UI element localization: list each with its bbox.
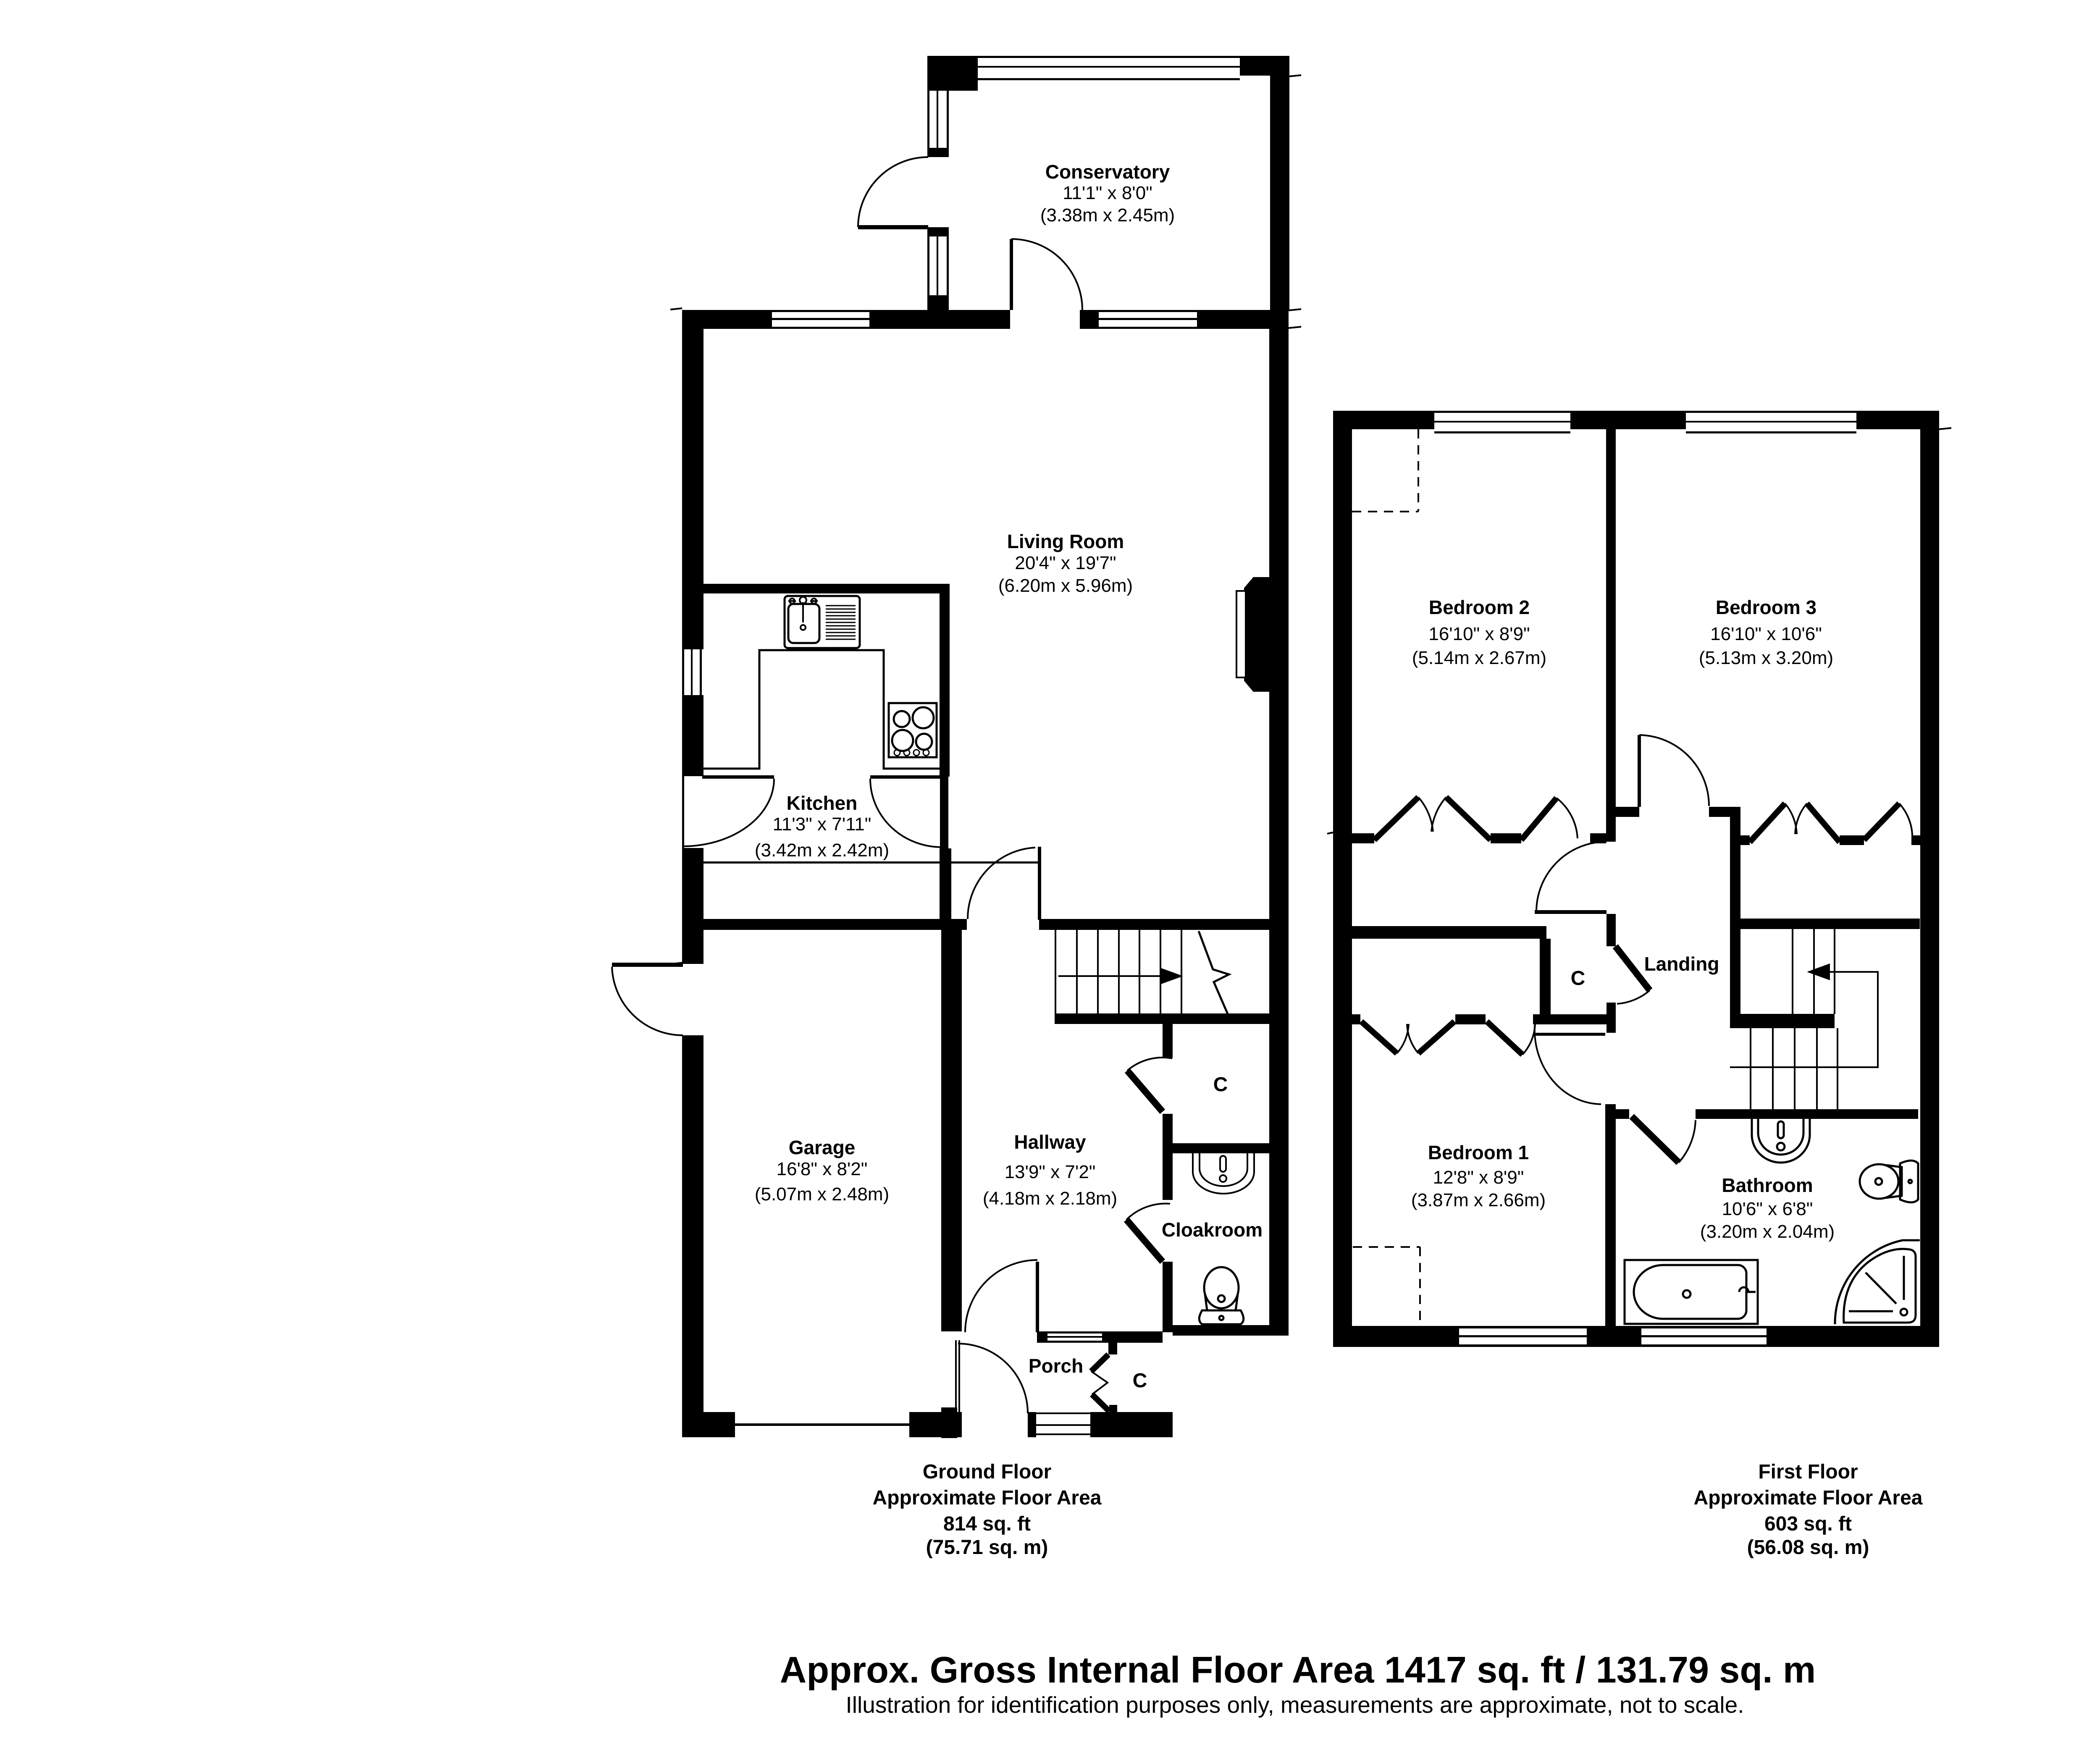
svg-text:Approximate Floor Area: Approximate Floor Area: [873, 1487, 1102, 1509]
svg-text:Living Room: Living Room: [1007, 530, 1124, 552]
svg-text:(3.42m x 2.42m): (3.42m x 2.42m): [755, 840, 889, 861]
svg-text:Conservatory: Conservatory: [1045, 161, 1170, 183]
svg-text:Bedroom 1: Bedroom 1: [1428, 1142, 1529, 1163]
svg-text:Ground Floor: Ground Floor: [923, 1461, 1052, 1483]
svg-text:12'8" x 8'9": 12'8" x 8'9": [1433, 1167, 1524, 1188]
svg-text:(5.07m x 2.48m): (5.07m x 2.48m): [755, 1184, 889, 1205]
svg-text:Porch: Porch: [1029, 1355, 1083, 1377]
svg-text:(5.14m x 2.67m): (5.14m x 2.67m): [1412, 648, 1546, 668]
svg-text:11'3" x 7'11": 11'3" x 7'11": [773, 814, 871, 835]
svg-text:Bedroom 3: Bedroom 3: [1716, 596, 1816, 618]
svg-text:16'10" x 10'6": 16'10" x 10'6": [1710, 624, 1822, 644]
svg-text:Garage: Garage: [789, 1137, 856, 1158]
svg-text:Bathroom: Bathroom: [1722, 1174, 1813, 1196]
svg-text:Hallway: Hallway: [1014, 1131, 1086, 1153]
svg-text:Illustration for identificatio: Illustration for identification purposes…: [846, 1692, 1744, 1718]
svg-text:20'4" x 19'7": 20'4" x 19'7": [1015, 553, 1116, 573]
svg-text:(75.71 sq. m): (75.71 sq. m): [926, 1536, 1048, 1559]
svg-text:(56.08 sq. m): (56.08 sq. m): [1747, 1536, 1869, 1559]
svg-text:13'9" x 7'2": 13'9" x 7'2": [1005, 1162, 1096, 1182]
svg-text:11'1" x 8'0": 11'1" x 8'0": [1063, 183, 1152, 203]
svg-text:(3.87m x 2.66m): (3.87m x 2.66m): [1411, 1190, 1546, 1210]
svg-text:C: C: [1571, 967, 1585, 990]
svg-text:10'6" x 6'8": 10'6" x 6'8": [1722, 1199, 1813, 1219]
svg-text:814 sq. ft: 814 sq. ft: [943, 1513, 1031, 1535]
svg-text:(5.13m x 3.20m): (5.13m x 3.20m): [1699, 648, 1833, 668]
svg-text:C: C: [1133, 1370, 1147, 1392]
svg-text:Kitchen: Kitchen: [787, 792, 858, 814]
svg-text:16'10" x 8'9": 16'10" x 8'9": [1428, 624, 1530, 644]
svg-text:(6.20m x 5.96m): (6.20m x 5.96m): [998, 575, 1133, 596]
svg-text:Approx. Gross Internal Floor A: Approx. Gross Internal Floor Area 1417 s…: [780, 1649, 1816, 1690]
svg-text:(3.38m x 2.45m): (3.38m x 2.45m): [1040, 205, 1175, 226]
svg-text:(3.20m x 2.04m): (3.20m x 2.04m): [1700, 1221, 1835, 1242]
svg-text:Bedroom 2: Bedroom 2: [1429, 596, 1530, 618]
svg-text:Approximate Floor Area: Approximate Floor Area: [1694, 1487, 1923, 1509]
svg-text:16'8" x 8'2": 16'8" x 8'2": [777, 1159, 868, 1179]
svg-text:603 sq. ft: 603 sq. ft: [1764, 1513, 1852, 1535]
svg-text:First Floor: First Floor: [1758, 1461, 1858, 1483]
svg-text:Cloakroom: Cloakroom: [1162, 1219, 1263, 1241]
svg-text:C: C: [1213, 1074, 1228, 1096]
svg-text:(4.18m x 2.18m): (4.18m x 2.18m): [983, 1188, 1117, 1209]
svg-text:Landing: Landing: [1644, 953, 1719, 975]
